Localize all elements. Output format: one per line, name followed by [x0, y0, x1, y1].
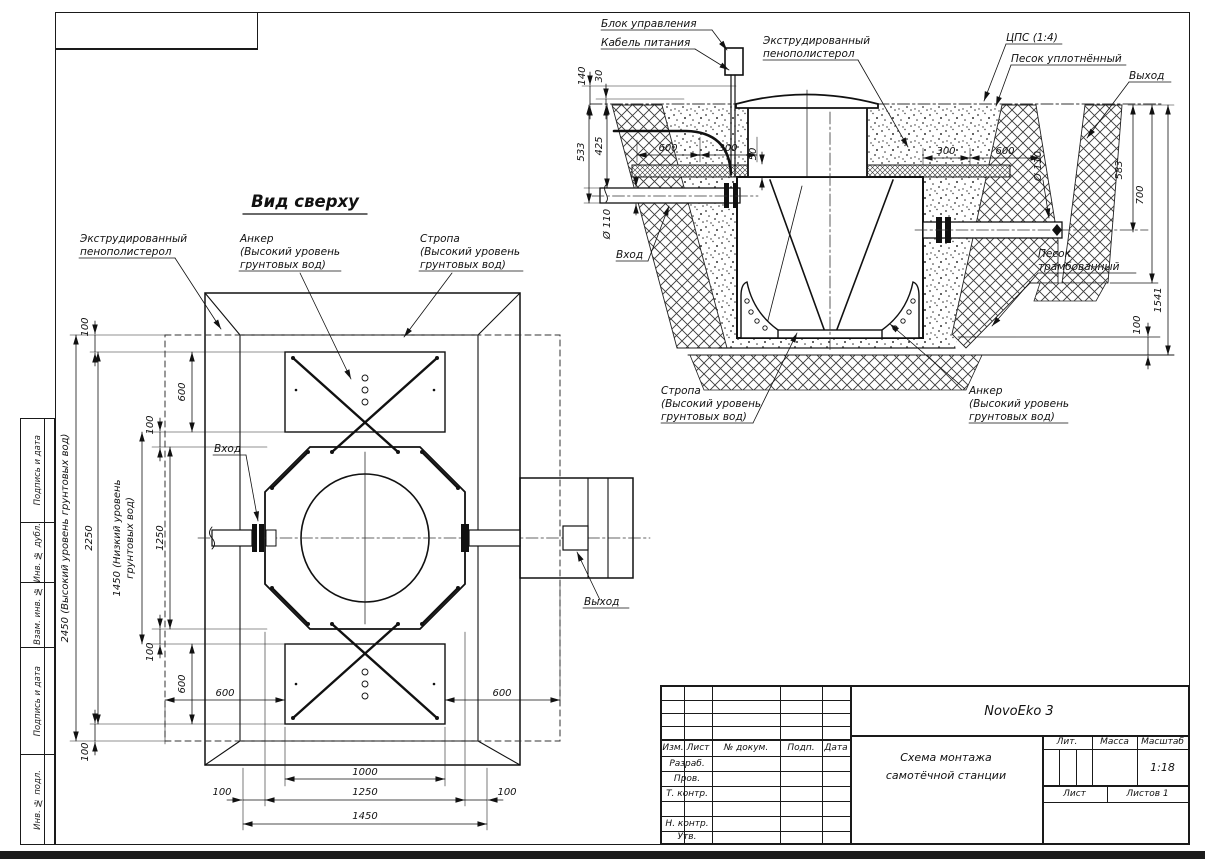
inlet-label-section: Вход — [616, 249, 643, 261]
tb-sheets: Листов 1 — [1107, 785, 1188, 802]
tv-anchor-label-line1: Анкер — [239, 233, 274, 245]
cps-label: ЦПС (1:4) — [1006, 32, 1058, 44]
dim-600-bottom-right: 600 — [492, 688, 511, 699]
anchor-label-line3: грунтовых вод) — [969, 411, 1055, 423]
dim-2450: 2450 (Высокий уровень грунтовых вод) — [60, 434, 71, 643]
outlet-label-section: Выход — [1129, 70, 1164, 82]
tb-doc-title-line2: самотёчной станции — [850, 765, 1042, 785]
dim-2250: 2250 — [84, 525, 95, 550]
tb-row-prov: Пров. — [662, 771, 712, 786]
anchor-plate-top — [285, 352, 445, 432]
tb-col-data: Дата — [822, 740, 850, 756]
scan-edge-bar — [0, 851, 1205, 859]
anchor-label-line1: Анкер — [968, 385, 1003, 397]
dim-50: 50 — [748, 148, 759, 161]
tb-row-tkontr: Т. контр. — [662, 786, 712, 801]
dim-1250-v: 1250 — [155, 525, 166, 550]
tb-masshtab-header: Масштаб — [1137, 735, 1188, 749]
eps-label-line1: Экструдированный — [762, 35, 870, 47]
section-view: Блок управления Кабель питания Экструдир… — [576, 18, 1174, 423]
sling-label-line3: грунтовых вод) — [661, 411, 747, 423]
dim-1541: 1541 — [1153, 287, 1164, 312]
tb-col-list: Лист — [684, 740, 712, 756]
tb-col-doc: № докум. — [712, 740, 780, 756]
dim-30: 30 — [594, 70, 605, 83]
tv-inlet-label: Вход — [214, 443, 241, 455]
eps-label-line2: пенополистерол — [763, 48, 855, 60]
outlet-pipe-top — [469, 530, 520, 546]
tb-row-nkontr: Н. контр. — [662, 816, 712, 831]
inlet-pipe-top — [212, 530, 252, 546]
power-cable-label: Кабель питания — [601, 37, 690, 49]
dim-100-top: 100 — [80, 317, 91, 336]
dim-dia-inlet: Ø 110 — [601, 209, 613, 240]
cps-layer-right — [867, 165, 1010, 177]
tb-product-name: NovoEko 3 — [850, 687, 1188, 735]
dim-1450-bottom: 1450 — [352, 811, 377, 822]
control-unit-label: Блок управления — [601, 18, 697, 30]
dim-600-bot-left: 600 — [177, 674, 188, 693]
dim-300-left: 300 — [718, 143, 737, 154]
dim-100-section: 100 — [1132, 315, 1143, 334]
dim-dia-outlet: Ø 110 — [1032, 151, 1044, 182]
dim-1000: 1000 — [352, 767, 377, 778]
dim-100-bottom-right: 100 — [497, 787, 516, 798]
dim-600-bottom-left: 600 — [215, 688, 234, 699]
sand-tamped-label-line1: Песок — [1038, 248, 1072, 260]
dim-1450-line2: грунтовых вод) — [125, 497, 136, 579]
tv-sling-label-line1: Стропа — [420, 233, 460, 245]
dim-425: 425 — [594, 136, 605, 155]
tv-sling-label-line3: грунтовых вод) — [420, 259, 506, 271]
top-view: Вид сверху Экструдированный пенополистер… — [60, 192, 650, 830]
dim-100-mid-bot: 100 — [145, 642, 156, 661]
tb-col-podp: Подп. — [780, 740, 822, 756]
inlet-pipe — [600, 188, 740, 203]
tv-outlet-label: Выход — [584, 596, 619, 608]
engineering-drawing-page: { "side_column": {"cells": ["Подпись и д… — [0, 0, 1205, 859]
tb-lit-header: Лит. — [1042, 735, 1092, 749]
dim-100-bot: 100 — [80, 742, 91, 761]
tv-eps-label-line2: пенополистерол — [80, 246, 172, 258]
dim-1250-bottom: 1250 — [352, 787, 377, 798]
dim-583: 583 — [1114, 160, 1125, 179]
control-unit-box — [725, 48, 743, 75]
anchor-label-line2: (Высокий уровень — [969, 398, 1069, 410]
sand-tamped-label-line2: трамбованный — [1038, 261, 1120, 273]
tb-scale-value: 1:18 — [1137, 749, 1188, 785]
anchor-plate-bottom — [285, 644, 445, 724]
title-block: Изм. Лист № докум. Подп. Дата Разраб. Пр… — [660, 685, 1190, 845]
tv-anchor-label-line2: (Высокий уровень — [240, 246, 340, 258]
sling-label-line1: Стропа — [661, 385, 701, 397]
cps-layer-left — [632, 165, 757, 177]
dim-100-bottom-left: 100 — [212, 787, 231, 798]
dim-100-mid-top: 100 — [145, 415, 156, 434]
dim-700: 700 — [1135, 185, 1146, 204]
tb-sheet: Лист — [1042, 785, 1107, 802]
soil-bottom-band — [690, 355, 982, 390]
tv-sling-label-line2: (Высокий уровень — [420, 246, 520, 258]
tv-eps-label-line1: Экструдированный — [79, 233, 187, 245]
dim-140: 140 — [577, 66, 588, 85]
tank-neck — [748, 104, 867, 177]
tb-row-utv: Утв. — [662, 831, 712, 843]
tb-massa-header: Масса — [1092, 735, 1137, 749]
tv-anchor-label-line3: грунтовых вод) — [240, 259, 326, 271]
sling-label-line2: (Высокий уровень — [661, 398, 761, 410]
sand-compacted-label: Песок уплотнённый — [1011, 53, 1122, 65]
outlet-stub — [563, 526, 588, 550]
dim-300-right: 300 — [936, 146, 955, 157]
tb-col-izm: Изм. — [662, 740, 684, 756]
dim-600-top-left: 600 — [177, 382, 188, 401]
soil-under-outlet-trench — [1034, 283, 1106, 301]
tb-doc-title-line1: Схема монтажа — [850, 747, 1042, 767]
tb-row-razrab: Разраб. — [662, 756, 712, 771]
dim-1450-line1: 1450 (Низкий уровень — [112, 479, 123, 596]
dim-600-left: 600 — [658, 143, 677, 154]
view-title: Вид сверху — [251, 192, 360, 211]
dim-533: 533 — [576, 142, 587, 161]
dim-600-right: 600 — [995, 146, 1014, 157]
